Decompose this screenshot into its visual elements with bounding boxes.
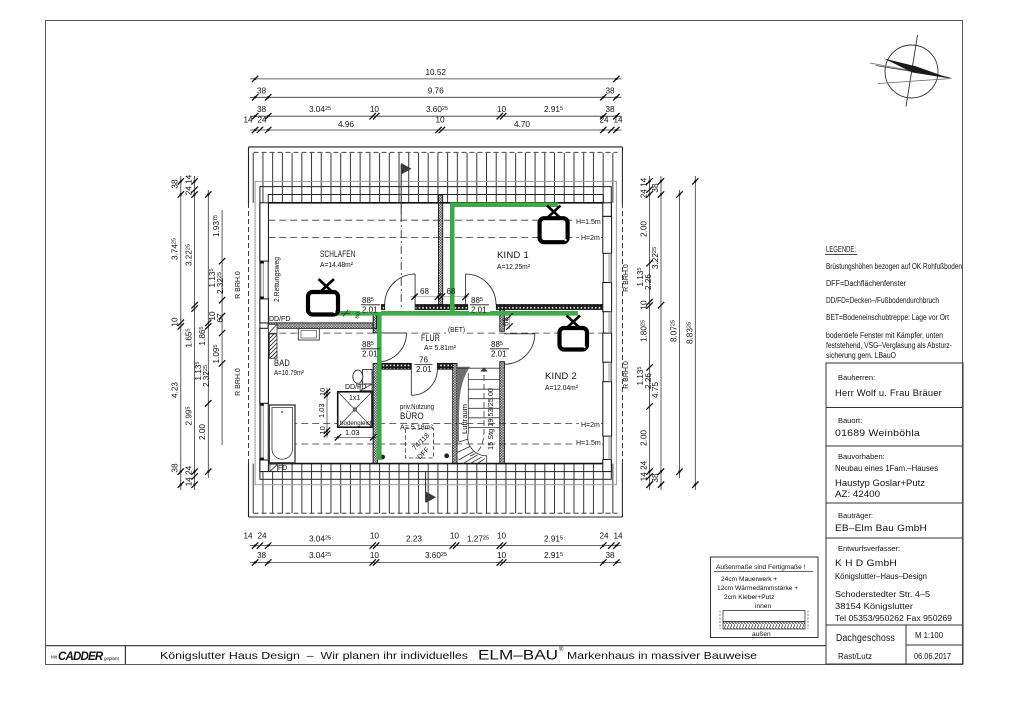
svg-text:2.00: 2.00 xyxy=(198,424,207,440)
svg-text:Schoderstedter Str. 4–5: Schoderstedter Str. 4–5 xyxy=(835,590,931,599)
svg-text:H=1.5m: H=1.5m xyxy=(576,219,601,226)
svg-text:Dachgeschoss: Dachgeschoss xyxy=(836,633,895,644)
svg-text:A= 5.18m²: A= 5.18m² xyxy=(400,425,434,432)
svg-text:A=12.25m²: A=12.25m² xyxy=(497,264,531,271)
svg-text:38: 38 xyxy=(605,551,615,560)
svg-text:38: 38 xyxy=(257,87,267,96)
svg-text:innen: innen xyxy=(755,603,771,610)
svg-text:Luftraum: Luftraum xyxy=(462,404,469,434)
svg-text:4.75: 4.75 xyxy=(651,382,660,398)
svg-text:10: 10 xyxy=(497,532,507,541)
svg-text:R BRH.0: R BRH.0 xyxy=(623,361,630,389)
svg-text:DD/FD=Decken–/Fußbodendurchbru: DD/FD=Decken–/Fußbodendurchbruch xyxy=(826,296,939,305)
svg-text:2cm Kleber+Putz: 2cm Kleber+Putz xyxy=(724,594,774,601)
svg-text:AZ: 42400: AZ: 42400 xyxy=(835,489,880,499)
svg-text:10: 10 xyxy=(171,317,180,327)
svg-text:Rast/Lutz: Rast/Lutz xyxy=(838,652,872,661)
svg-text:10: 10 xyxy=(318,426,327,434)
svg-text:24: 24 xyxy=(599,116,609,125)
svg-text:feststehend, VSG–Verglasung al: feststehend, VSG–Verglasung als Absturz- xyxy=(826,341,952,350)
svg-text:2.23: 2.23 xyxy=(406,535,422,544)
svg-text:10: 10 xyxy=(370,551,380,560)
svg-text:DD/FD: DD/FD xyxy=(345,384,366,391)
svg-text:24: 24 xyxy=(599,532,609,541)
svg-text:Bauort:: Bauort: xyxy=(838,416,862,425)
svg-text:24 14: 24 14 xyxy=(640,177,649,198)
svg-text:2.01: 2.01 xyxy=(416,365,432,374)
svg-text:Tel 05353/950262 Fax 950269: Tel 05353/950262 Fax 950269 xyxy=(835,614,953,623)
svg-text:10: 10 xyxy=(318,388,327,396)
svg-text:LEGENDE:: LEGENDE: xyxy=(826,245,856,254)
svg-text:1x1: 1x1 xyxy=(349,395,360,402)
svg-text:14: 14 xyxy=(243,532,253,541)
svg-text:4.96: 4.96 xyxy=(338,120,354,129)
svg-text:(BET): (BET) xyxy=(448,327,465,334)
svg-text:FLUR: FLUR xyxy=(421,333,440,344)
svg-text:R BRH.0: R BRH.0 xyxy=(235,368,242,396)
svg-text:CADDER: CADDER xyxy=(58,651,104,663)
svg-text:2.01: 2.01 xyxy=(471,306,487,315)
svg-text:24: 24 xyxy=(257,116,267,125)
svg-text:2.Rettungsweg: 2.Rettungsweg xyxy=(274,257,281,302)
svg-text:Bauträger:: Bauträger: xyxy=(838,511,873,520)
svg-text:14: 14 xyxy=(243,116,253,125)
svg-text:10: 10 xyxy=(370,105,380,114)
svg-text:06.06.2017: 06.06.2017 xyxy=(914,652,952,661)
svg-text:14: 14 xyxy=(613,532,623,541)
svg-text:Haustyp Goslar+Putz: Haustyp Goslar+Putz xyxy=(835,478,925,488)
svg-text:Brüstungshöhen bezogen auf OK: Brüstungshöhen bezogen auf OK Rohfußbode… xyxy=(826,262,962,271)
svg-text:priv.Nutzung: priv.Nutzung xyxy=(400,404,434,411)
svg-text:Außenmaße sind Fertigmaße !: Außenmaße sind Fertigmaße ! xyxy=(716,564,806,571)
svg-text:24 14: 24 14 xyxy=(185,174,194,195)
svg-text:15 Stg 19.53/25.00: 15 Stg 19.53/25.00 xyxy=(488,388,495,450)
svg-text:Königslutter–Haus–Design: Königslutter–Haus–Design xyxy=(835,572,927,581)
svg-text:14: 14 xyxy=(613,116,623,125)
svg-text:68: 68 xyxy=(420,287,429,296)
svg-text:FD: FD xyxy=(278,465,287,472)
svg-text:EB–Elm Bau GmbH: EB–Elm Bau GmbH xyxy=(835,523,927,533)
svg-text:2.01: 2.01 xyxy=(362,306,378,315)
svg-text:10: 10 xyxy=(370,532,380,541)
svg-text:BAD: BAD xyxy=(274,358,290,369)
svg-text:Entwurfsverfasser:: Entwurfsverfasser: xyxy=(838,544,900,553)
svg-text:Königslutter Haus Design – W: Königslutter Haus Design – Wir planen ih… xyxy=(160,651,468,662)
svg-text:38: 38 xyxy=(171,463,180,473)
svg-text:H=2m: H=2m xyxy=(581,235,600,242)
svg-text:4.70: 4.70 xyxy=(514,120,530,129)
svg-text:Mit: Mit xyxy=(51,655,58,660)
svg-text:sicherung gem. LBauO: sicherung gem. LBauO xyxy=(826,351,896,360)
svg-text:38154 Königslutter: 38154 Königslutter xyxy=(835,602,913,611)
svg-text:H=2m: H=2m xyxy=(581,422,600,429)
svg-text:2.26: 2.26 xyxy=(644,274,653,290)
svg-text:38: 38 xyxy=(257,105,267,114)
svg-text:geplant: geplant xyxy=(104,656,120,661)
svg-text:10: 10 xyxy=(497,105,507,114)
svg-text:10: 10 xyxy=(435,116,445,125)
svg-text:DD/FD: DD/FD xyxy=(269,316,290,323)
svg-text:A=12.04m²: A=12.04m² xyxy=(545,385,579,392)
svg-text:4.23: 4.23 xyxy=(171,382,180,398)
svg-text:2.00: 2.00 xyxy=(640,430,649,446)
svg-text:1.03: 1.03 xyxy=(317,403,326,418)
svg-text:2.01: 2.01 xyxy=(491,350,507,359)
svg-text:2.01: 2.01 xyxy=(362,350,378,359)
svg-text:68: 68 xyxy=(502,317,511,326)
svg-text:38: 38 xyxy=(651,473,660,483)
svg-text:12cm Wärmedämmstärke +: 12cm Wärmedämmstärke + xyxy=(717,585,798,592)
svg-text:10: 10 xyxy=(450,532,460,541)
svg-text:38: 38 xyxy=(605,87,615,96)
svg-text:14 24: 14 24 xyxy=(185,465,194,486)
svg-text:38: 38 xyxy=(651,183,660,193)
svg-text:bodentiefe Fenster mit Kämpfer: bodentiefe Fenster mit Kämpfer, unten xyxy=(826,331,943,340)
svg-text:Bauvorhaben:: Bauvorhaben: xyxy=(838,452,885,461)
svg-text:KIND 1: KIND 1 xyxy=(497,250,529,261)
svg-text:01689 Weinböhla: 01689 Weinböhla xyxy=(835,428,921,438)
svg-text:10.52: 10.52 xyxy=(425,68,446,77)
svg-text:2.00: 2.00 xyxy=(640,221,649,237)
svg-text:M 1:100: M 1:100 xyxy=(915,631,944,640)
svg-text:Bauherren:: Bauherren: xyxy=(838,373,875,382)
svg-text:R BRH.0: R BRH.0 xyxy=(235,271,242,299)
svg-text:BET=Bodeneinschubtreppe: Lage: BET=Bodeneinschubtreppe: Lage vor Ort xyxy=(826,313,950,322)
svg-text:K H D GmbH: K H D GmbH xyxy=(835,558,897,568)
svg-text:14 24: 14 24 xyxy=(640,460,649,481)
svg-text:DFF=Dachflächenfenster: DFF=Dachflächenfenster xyxy=(826,279,906,288)
svg-text:67: 67 xyxy=(216,313,225,323)
svg-text:24: 24 xyxy=(257,532,267,541)
svg-text:38: 38 xyxy=(257,551,267,560)
svg-text:H=1.5m: H=1.5m xyxy=(576,440,601,447)
svg-text:BÜRO: BÜRO xyxy=(400,411,424,422)
svg-text:A=10.79m²: A=10.79m² xyxy=(274,370,305,377)
svg-text:A= 5.81m²: A= 5.81m² xyxy=(424,345,457,352)
svg-text:außen: außen xyxy=(752,631,771,638)
svg-text:Markenhaus in massiver Bauweis: Markenhaus in massiver Bauweise xyxy=(567,651,757,662)
svg-text:ELM–BAU: ELM–BAU xyxy=(478,648,558,663)
svg-text:38: 38 xyxy=(605,105,615,114)
svg-text:9.76: 9.76 xyxy=(428,87,444,96)
svg-text:68: 68 xyxy=(447,287,456,296)
svg-text:bodengleich: bodengleich xyxy=(340,420,374,427)
svg-text:38: 38 xyxy=(171,179,180,189)
svg-text:1.03: 1.03 xyxy=(345,428,360,437)
svg-text:10: 10 xyxy=(640,300,649,310)
svg-text:®: ® xyxy=(559,646,564,653)
svg-text:R BRH.0: R BRH.0 xyxy=(623,264,630,292)
svg-text:24cm Mauerwerk +: 24cm Mauerwerk + xyxy=(721,576,777,583)
svg-text:A=14.48m²: A=14.48m² xyxy=(320,262,354,269)
svg-text:SCHLAFEN: SCHLAFEN xyxy=(320,249,356,260)
svg-text:KIND 2: KIND 2 xyxy=(545,371,577,382)
svg-text:10: 10 xyxy=(497,551,507,560)
svg-text:Herr Wolf u. Frau Bräuer: Herr Wolf u. Frau Bräuer xyxy=(835,388,942,398)
svg-text:Neubau eines 1Fam.–Hauses: Neubau eines 1Fam.–Hauses xyxy=(835,464,938,473)
svg-text:76: 76 xyxy=(419,356,428,365)
